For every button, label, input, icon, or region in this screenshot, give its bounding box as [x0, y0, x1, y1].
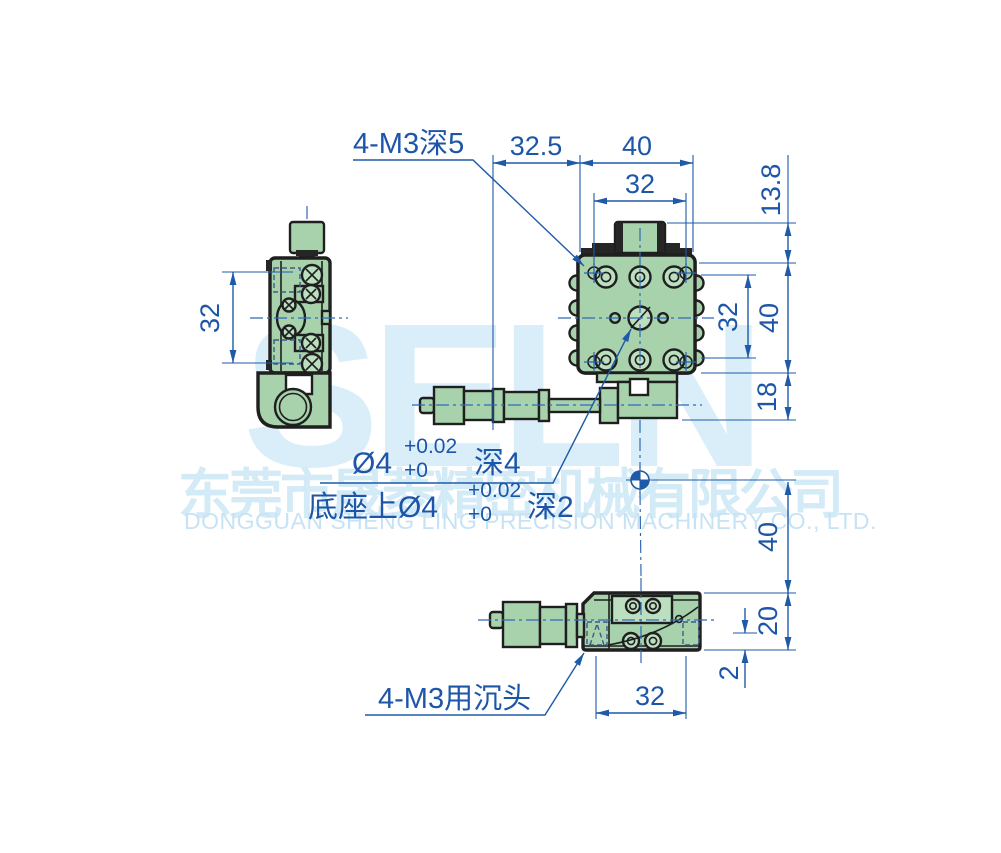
- dim-stage-height: 40: [754, 303, 784, 333]
- micrometer-end: [275, 389, 311, 425]
- micrometer-thimble: [503, 602, 540, 647]
- center-hole-tol-lower: +0: [404, 459, 428, 482]
- side-view-knob: [290, 222, 324, 253]
- dim-base-height: 18: [752, 382, 782, 412]
- base-hole-depth: 深2: [527, 491, 574, 524]
- linear-stage-drawing: SELN 东莞市晟菱精密机械有限公司 DONGGUAN SHENG LING P…: [0, 0, 1001, 853]
- base-hole-prefix: 底座上Ø4: [308, 491, 438, 524]
- center-hole-tol-upper: +0.02: [404, 435, 457, 458]
- technical-drawing-page: SELN 东莞市晟菱精密机械有限公司 DONGGUAN SHENG LING P…: [0, 0, 1001, 853]
- dim-hole-span-top: 32: [625, 169, 655, 199]
- center-hole-prefix: Ø4: [352, 447, 392, 480]
- dim-side-hole-span: 32: [195, 303, 225, 333]
- note-top-thread: 4-M3深5: [353, 128, 464, 160]
- micrometer-front: [490, 602, 584, 647]
- dim-front-height: 20: [753, 606, 783, 636]
- dim-knob-height: 13.8: [756, 164, 786, 217]
- leader-top-thread: [353, 160, 584, 266]
- note-countersunk: 4-M3用沉头: [378, 682, 531, 715]
- center-hole-depth: 深4: [474, 447, 521, 480]
- base-hole-tol-upper: +0.02: [468, 479, 521, 502]
- moving-table-edge: [612, 596, 672, 623]
- dim-stage-width: 40: [622, 131, 652, 161]
- base-hole-tol-lower: +0: [468, 503, 492, 526]
- front-view: [478, 578, 716, 664]
- dim-micrometer-offset: 32.5: [510, 131, 563, 161]
- dim-front-hole-span: 32: [635, 681, 665, 711]
- dim-hole-span-right: 32: [713, 302, 743, 332]
- dim-countersink-offset: 2: [714, 665, 744, 680]
- dim-center-to-base: 40: [753, 522, 783, 552]
